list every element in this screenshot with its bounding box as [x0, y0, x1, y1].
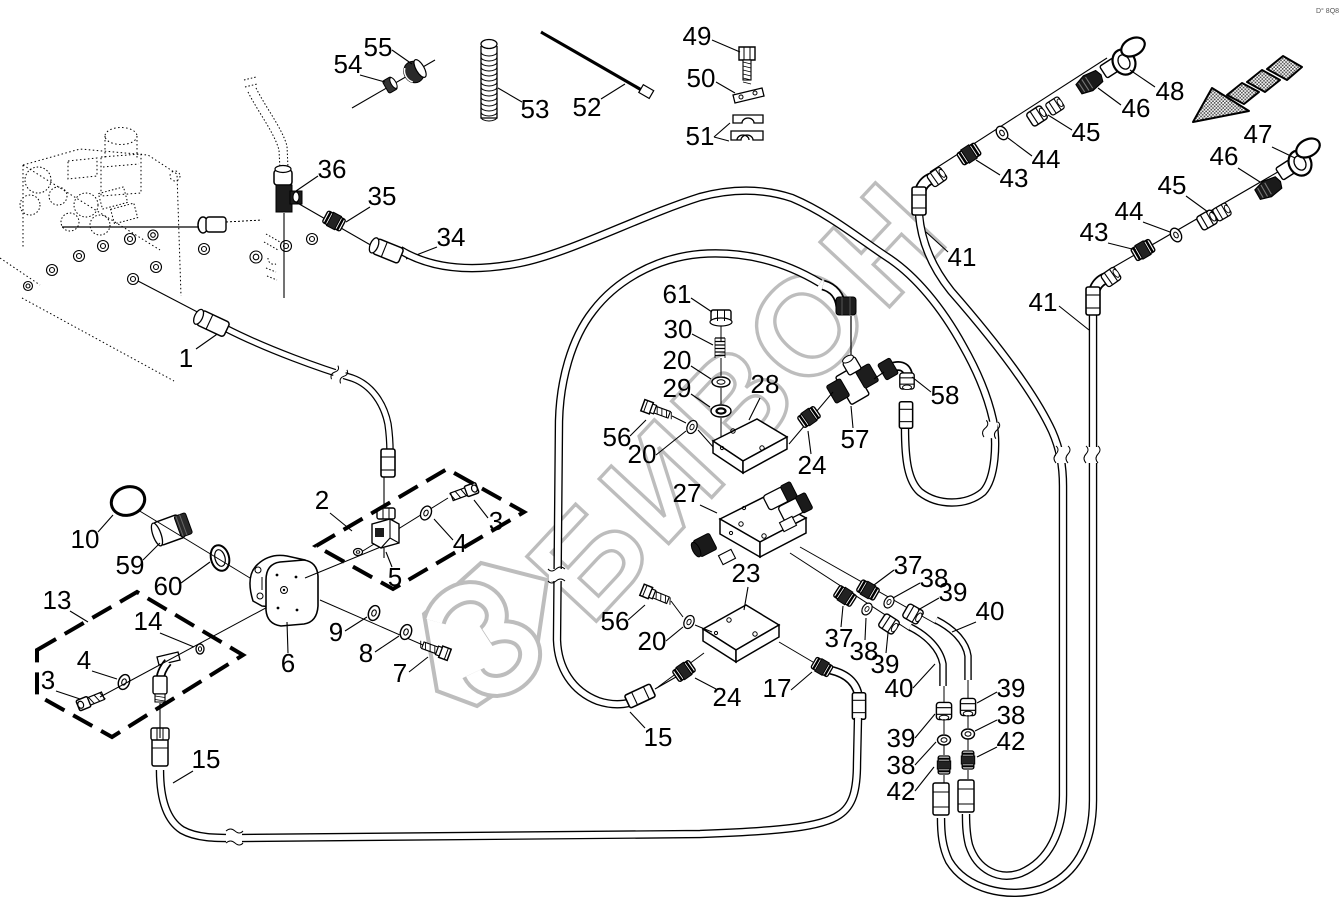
svg-text:45: 45	[1072, 117, 1101, 147]
svg-text:13: 13	[43, 585, 72, 615]
svg-text:34: 34	[437, 222, 466, 252]
svg-text:56: 56	[601, 606, 630, 636]
svg-text:43: 43	[1000, 163, 1029, 193]
svg-text:3: 3	[489, 506, 503, 536]
svg-text:46: 46	[1210, 141, 1239, 171]
svg-text:39: 39	[939, 577, 968, 607]
svg-text:61: 61	[663, 279, 692, 309]
svg-text:36: 36	[318, 154, 347, 184]
svg-text:D° 8Q8: D° 8Q8	[1316, 7, 1339, 15]
svg-text:39: 39	[997, 673, 1026, 703]
svg-text:3: 3	[41, 665, 55, 695]
svg-text:41: 41	[948, 242, 977, 272]
svg-text:2: 2	[315, 485, 329, 515]
svg-text:49: 49	[683, 21, 712, 51]
svg-text:5: 5	[388, 562, 402, 592]
svg-text:42: 42	[997, 726, 1026, 756]
svg-text:57: 57	[841, 424, 870, 454]
svg-text:50: 50	[687, 63, 716, 93]
svg-text:23: 23	[732, 558, 761, 588]
svg-text:8: 8	[359, 638, 373, 668]
svg-text:20: 20	[663, 345, 692, 375]
svg-text:41: 41	[1029, 287, 1058, 317]
svg-text:9: 9	[329, 617, 343, 647]
svg-text:53: 53	[521, 94, 550, 124]
svg-text:28: 28	[751, 369, 780, 399]
svg-text:40: 40	[885, 673, 914, 703]
svg-text:24: 24	[713, 682, 742, 712]
svg-text:24: 24	[798, 450, 827, 480]
svg-text:29: 29	[663, 373, 692, 403]
svg-text:15: 15	[192, 744, 221, 774]
svg-text:51: 51	[686, 121, 715, 151]
svg-text:14: 14	[134, 606, 163, 636]
svg-text:17: 17	[763, 673, 792, 703]
svg-text:54: 54	[334, 49, 363, 79]
svg-text:1: 1	[179, 343, 193, 373]
svg-text:27: 27	[673, 478, 702, 508]
svg-text:55: 55	[364, 32, 393, 62]
svg-text:35: 35	[368, 181, 397, 211]
svg-text:60: 60	[154, 571, 183, 601]
svg-text:47: 47	[1244, 119, 1273, 149]
svg-text:46: 46	[1122, 93, 1151, 123]
svg-text:4: 4	[453, 528, 467, 558]
svg-text:30: 30	[664, 314, 693, 344]
svg-text:40: 40	[976, 596, 1005, 626]
svg-text:7: 7	[393, 658, 407, 688]
svg-text:52: 52	[573, 92, 602, 122]
svg-text:4: 4	[77, 645, 91, 675]
svg-text:15: 15	[644, 722, 673, 752]
svg-text:43: 43	[1080, 217, 1109, 247]
svg-text:44: 44	[1032, 144, 1061, 174]
svg-text:20: 20	[638, 626, 667, 656]
svg-text:58: 58	[931, 380, 960, 410]
svg-text:20: 20	[628, 439, 657, 469]
svg-text:37: 37	[894, 550, 923, 580]
svg-text:45: 45	[1158, 170, 1187, 200]
svg-text:59: 59	[116, 550, 145, 580]
svg-text:44: 44	[1115, 196, 1144, 226]
svg-text:10: 10	[71, 524, 100, 554]
svg-text:39: 39	[887, 723, 916, 753]
svg-text:48: 48	[1156, 76, 1185, 106]
svg-text:42: 42	[887, 776, 916, 806]
